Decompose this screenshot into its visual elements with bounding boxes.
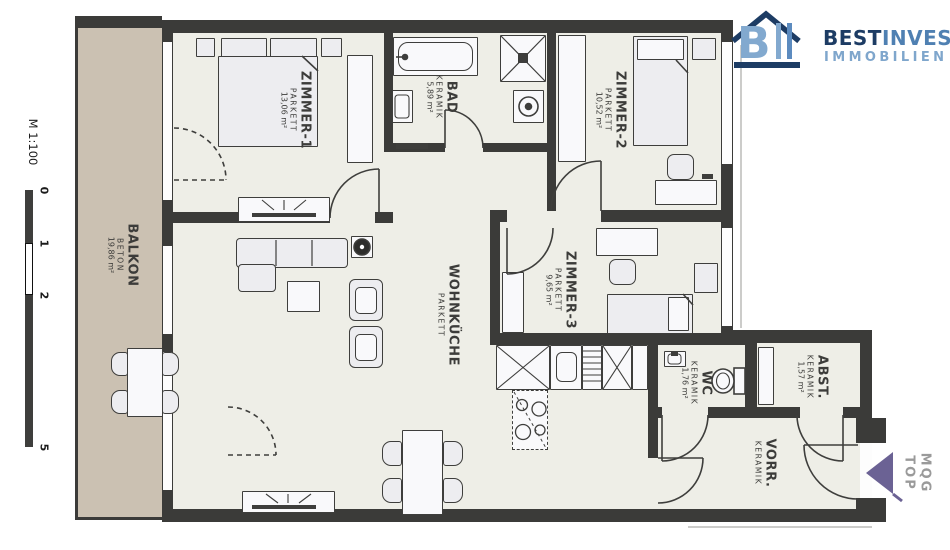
window-zimmer1-balcony	[162, 42, 173, 200]
wall-segment	[162, 20, 173, 42]
desk-chair	[609, 259, 636, 285]
desk	[596, 228, 658, 256]
wall-segment	[162, 334, 173, 352]
wardrobe	[347, 55, 373, 163]
floor-plan: M 1:100 0 1 2 5	[0, 0, 950, 550]
room-label-zimmer2: ZIMMER-2 PARKETT 10,52 m²	[594, 71, 627, 149]
wall-segment	[75, 16, 162, 28]
wall-segment	[721, 164, 733, 228]
desk-chair	[667, 154, 694, 180]
dining-chair	[443, 478, 463, 503]
wall-segment	[547, 33, 556, 211]
logo-subtitle: IMMOBILIEN	[824, 50, 947, 65]
kitchen-sink	[556, 352, 577, 382]
logo-roof	[733, 14, 799, 41]
logo-wordmark: BESTINVEST	[823, 26, 950, 50]
scale-segment	[25, 190, 33, 243]
wall-segment	[708, 407, 745, 418]
room-label-abst: ABST. KERAMIK 1,57 m²	[796, 355, 829, 400]
scale-segment	[25, 295, 33, 447]
wall-segment	[384, 33, 393, 143]
kitchen-counter	[632, 345, 648, 390]
room-label-vorr: VORR. KERAMIK	[754, 438, 777, 487]
entrance-jamb	[856, 498, 886, 522]
balcony-table	[127, 348, 163, 417]
scale-segment	[25, 243, 33, 295]
wall-segment	[483, 143, 547, 152]
logo-bar	[776, 23, 781, 59]
wall-segment	[162, 20, 733, 33]
wall-segment	[757, 407, 800, 418]
coffee-table	[287, 281, 320, 312]
entrance-marker-text: MQG TOP	[901, 453, 932, 494]
wall-segment	[745, 345, 757, 418]
window-zimmer3	[721, 228, 733, 326]
room-label-wohnkueche: WOHNKÜCHE PARKETT	[437, 264, 460, 366]
dining-chair	[382, 478, 402, 503]
tv-screen	[252, 505, 316, 509]
balcony-chair	[111, 390, 128, 414]
wall-segment	[490, 210, 507, 222]
dining-chair	[382, 441, 402, 466]
room-label-wc: WC KERAMIK 1,76 m²	[680, 361, 713, 406]
nightstand	[692, 38, 716, 60]
wardrobe	[502, 272, 524, 333]
pillow	[637, 39, 684, 60]
bath-mat	[396, 143, 428, 149]
wall-segment	[375, 212, 393, 223]
scale-tick: 5	[37, 444, 50, 452]
pillow	[221, 38, 267, 57]
cooktop	[512, 390, 548, 450]
dishwasher	[582, 345, 602, 390]
wc-faucet	[671, 351, 678, 356]
dining-table	[402, 430, 443, 515]
wall-segment	[490, 333, 757, 345]
room-label-zimmer1: ZIMMER-1 PARKETT 13,06 m²	[279, 71, 312, 149]
desk	[655, 180, 717, 205]
wardrobe	[558, 35, 586, 162]
wall-segment	[648, 418, 658, 458]
logo-baseline	[734, 62, 800, 68]
scale-tick: 2	[37, 292, 50, 300]
window-zimmer2	[721, 42, 733, 164]
armchair-cushion	[355, 287, 377, 314]
nightstand	[196, 38, 215, 57]
balcony-chair	[111, 352, 128, 376]
nightstand	[694, 263, 718, 293]
wall-segment	[162, 200, 173, 246]
kitchen-cabinet	[496, 345, 550, 390]
logo-bar	[787, 23, 792, 59]
storage-shelf	[758, 347, 774, 405]
logo-word-best: BEST	[823, 26, 882, 50]
balcony-chair	[162, 390, 179, 414]
desk-lamp	[702, 174, 713, 179]
tv-sideboard	[242, 491, 335, 513]
entrance-door-opening	[860, 443, 872, 498]
wall-segment	[648, 407, 662, 418]
room-label-zimmer3: ZIMMER-3 PARKETT 9,65 m²	[544, 251, 577, 329]
armchair-cushion	[355, 334, 377, 361]
room-label-balkon: BALKON BETON 19,86 m²	[106, 223, 139, 286]
room-label-bad: BAD KERAMIK 5,89 m²	[425, 75, 458, 120]
dining-chair	[443, 441, 463, 466]
sofa-chaise	[238, 264, 276, 292]
round-appliance	[351, 236, 373, 258]
dresser-tv-board	[238, 197, 330, 222]
wall-segment	[162, 490, 173, 512]
shower-drain	[518, 53, 528, 63]
wall-segment	[721, 20, 733, 42]
balcony-chair	[162, 352, 179, 376]
logo-word-invest: INVEST	[882, 26, 950, 50]
logo-mark-letter: B	[737, 18, 771, 69]
window-livingroom-balcony-door	[162, 246, 173, 334]
scale-tick: 0	[37, 187, 50, 195]
wall-segment	[843, 407, 860, 418]
pillow	[668, 297, 689, 331]
scale-tick: 1	[37, 240, 50, 248]
bathtub-basin	[398, 42, 473, 71]
scale-label: M 1:100	[26, 119, 40, 166]
washing-machine	[513, 90, 544, 123]
nightstand	[321, 38, 342, 57]
washbasin	[392, 90, 413, 123]
kitchen-cabinet	[602, 345, 632, 390]
entrance-jamb	[856, 418, 886, 443]
wall-segment	[490, 222, 500, 345]
wall-segment	[601, 210, 721, 222]
tv-screen	[252, 213, 316, 217]
pillow	[270, 38, 317, 57]
